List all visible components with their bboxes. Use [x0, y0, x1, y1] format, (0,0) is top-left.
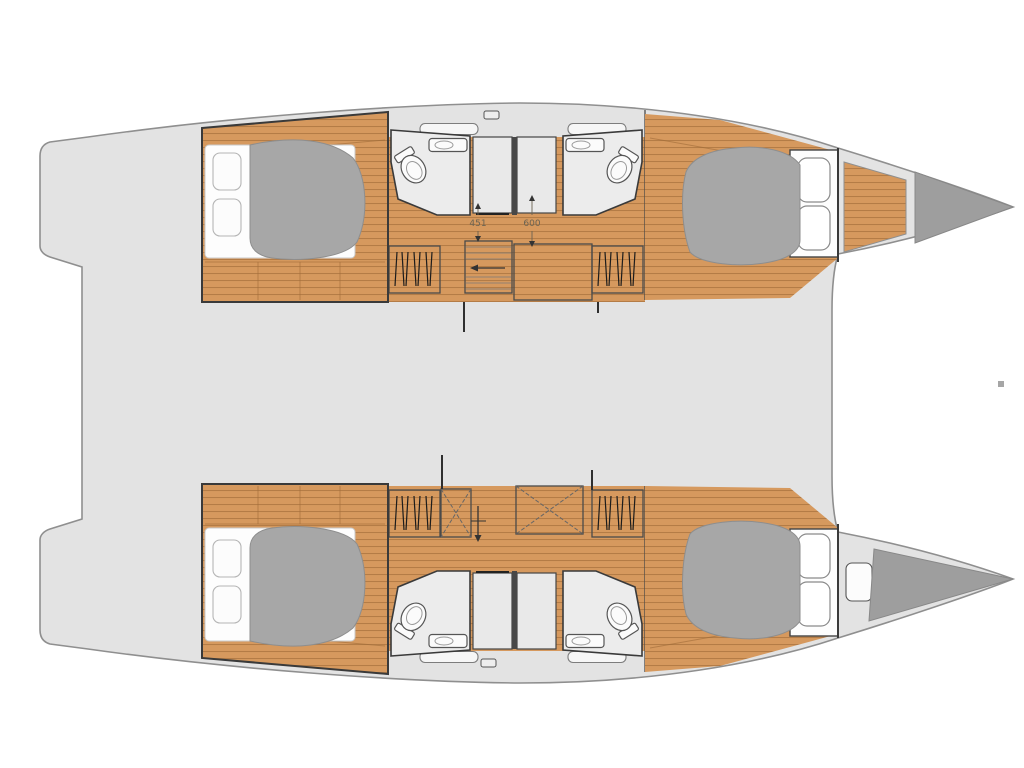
shower-stall — [517, 137, 556, 213]
storage-locker — [798, 158, 830, 202]
floorplan-svg: 451 600 — [0, 0, 1024, 768]
shower-divider-wall — [512, 571, 517, 649]
dimension-label: 451 — [469, 219, 486, 229]
deck-hatch — [484, 111, 499, 119]
artifact-mark — [998, 381, 1004, 387]
double-bed-cover — [250, 140, 365, 260]
port-aft-cabin — [202, 112, 388, 302]
starboard-hull — [202, 455, 1013, 674]
double-bed-cover — [683, 521, 800, 639]
pillow — [213, 586, 241, 623]
pillow — [213, 199, 241, 236]
forepeak-hatch — [846, 563, 872, 601]
shower-stall — [473, 573, 512, 649]
shower-stall — [517, 573, 556, 649]
double-bed-cover — [683, 147, 800, 265]
sink-icon — [566, 139, 604, 152]
sink-icon — [566, 635, 604, 648]
storage-locker — [798, 534, 830, 578]
starboard-aft-cabin — [202, 484, 388, 674]
bow-locker — [915, 172, 1013, 243]
sink-icon — [429, 139, 467, 152]
port-forepeak — [844, 162, 1013, 252]
deck-hatch — [481, 659, 496, 667]
starboard-midship — [388, 455, 645, 674]
port-midship: 451 600 — [388, 110, 645, 332]
catamaran-deck-plan: 451 600 — [0, 0, 1024, 768]
storage-locker — [798, 582, 830, 626]
double-bed-cover — [250, 527, 365, 647]
pillow — [213, 153, 241, 190]
pillow — [213, 540, 241, 577]
shower-stall — [473, 137, 512, 213]
dimension-label: 600 — [523, 219, 540, 229]
sink-icon — [429, 635, 467, 648]
storage-locker — [798, 206, 830, 250]
port-hull: 451 600 — [202, 110, 1013, 332]
shower-divider-wall — [512, 137, 517, 215]
